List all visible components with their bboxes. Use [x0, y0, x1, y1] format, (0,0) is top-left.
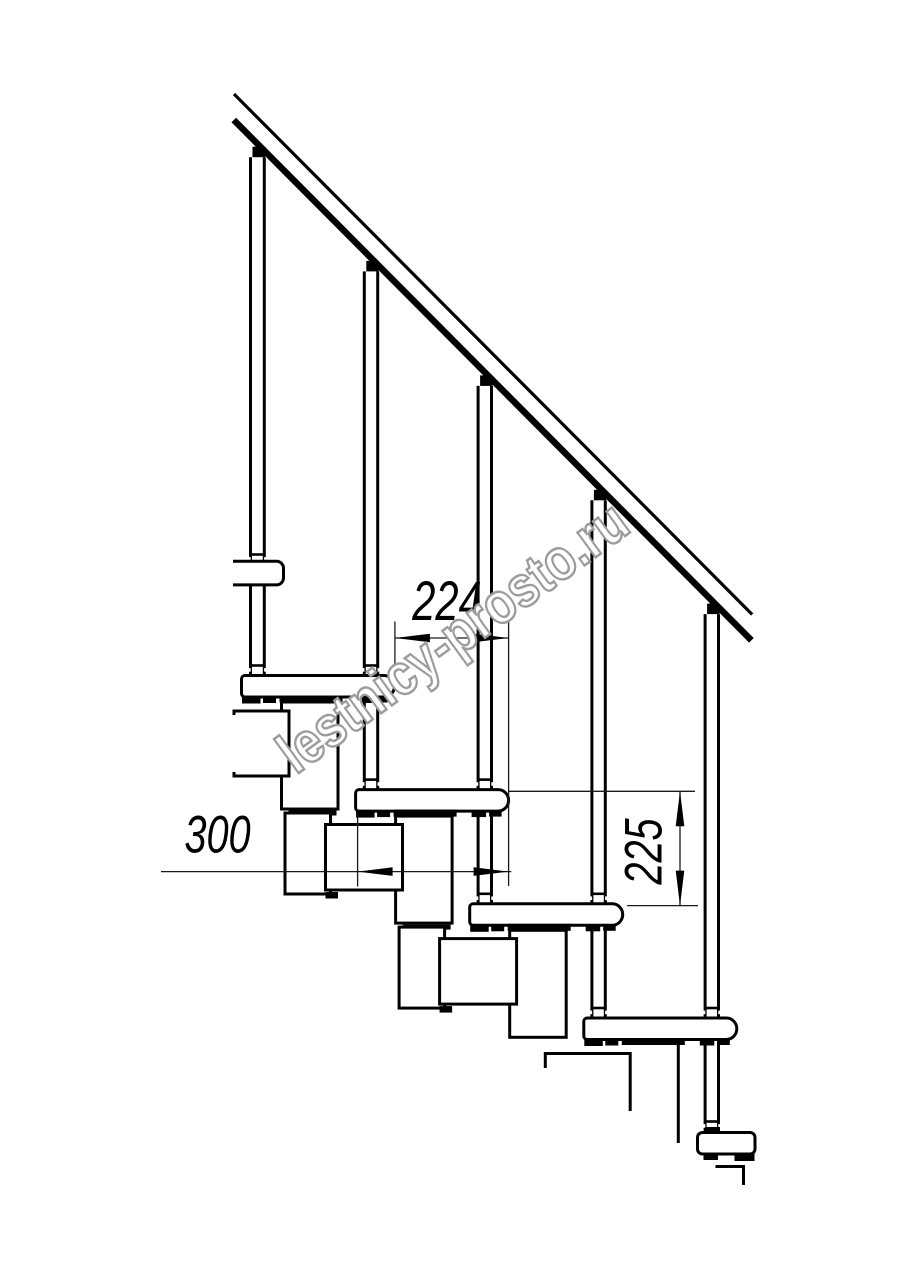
svg-text:225: 225: [614, 818, 673, 886]
svg-text:300: 300: [184, 805, 250, 864]
